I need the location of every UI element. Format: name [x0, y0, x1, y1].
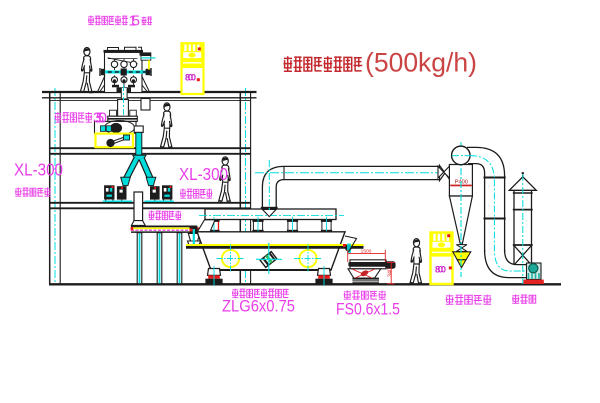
svg-text:XL-300: XL-300 — [179, 164, 228, 184]
svg-text:350: 350 — [93, 110, 107, 127]
svg-text:340: 340 — [388, 268, 394, 277]
svg-text:FS0.6x1.5: FS0.6x1.5 — [336, 301, 400, 319]
svg-text:XL-300: XL-300 — [14, 160, 63, 180]
svg-text:(500kg/h): (500kg/h) — [365, 48, 477, 78]
svg-text:800: 800 — [185, 73, 196, 83]
svg-text:1500: 1500 — [361, 248, 372, 254]
svg-text:800: 800 — [435, 265, 446, 275]
svg-text:1.5: 1.5 — [129, 14, 141, 30]
svg-text:ZLG6x0.75: ZLG6x0.75 — [222, 298, 295, 316]
